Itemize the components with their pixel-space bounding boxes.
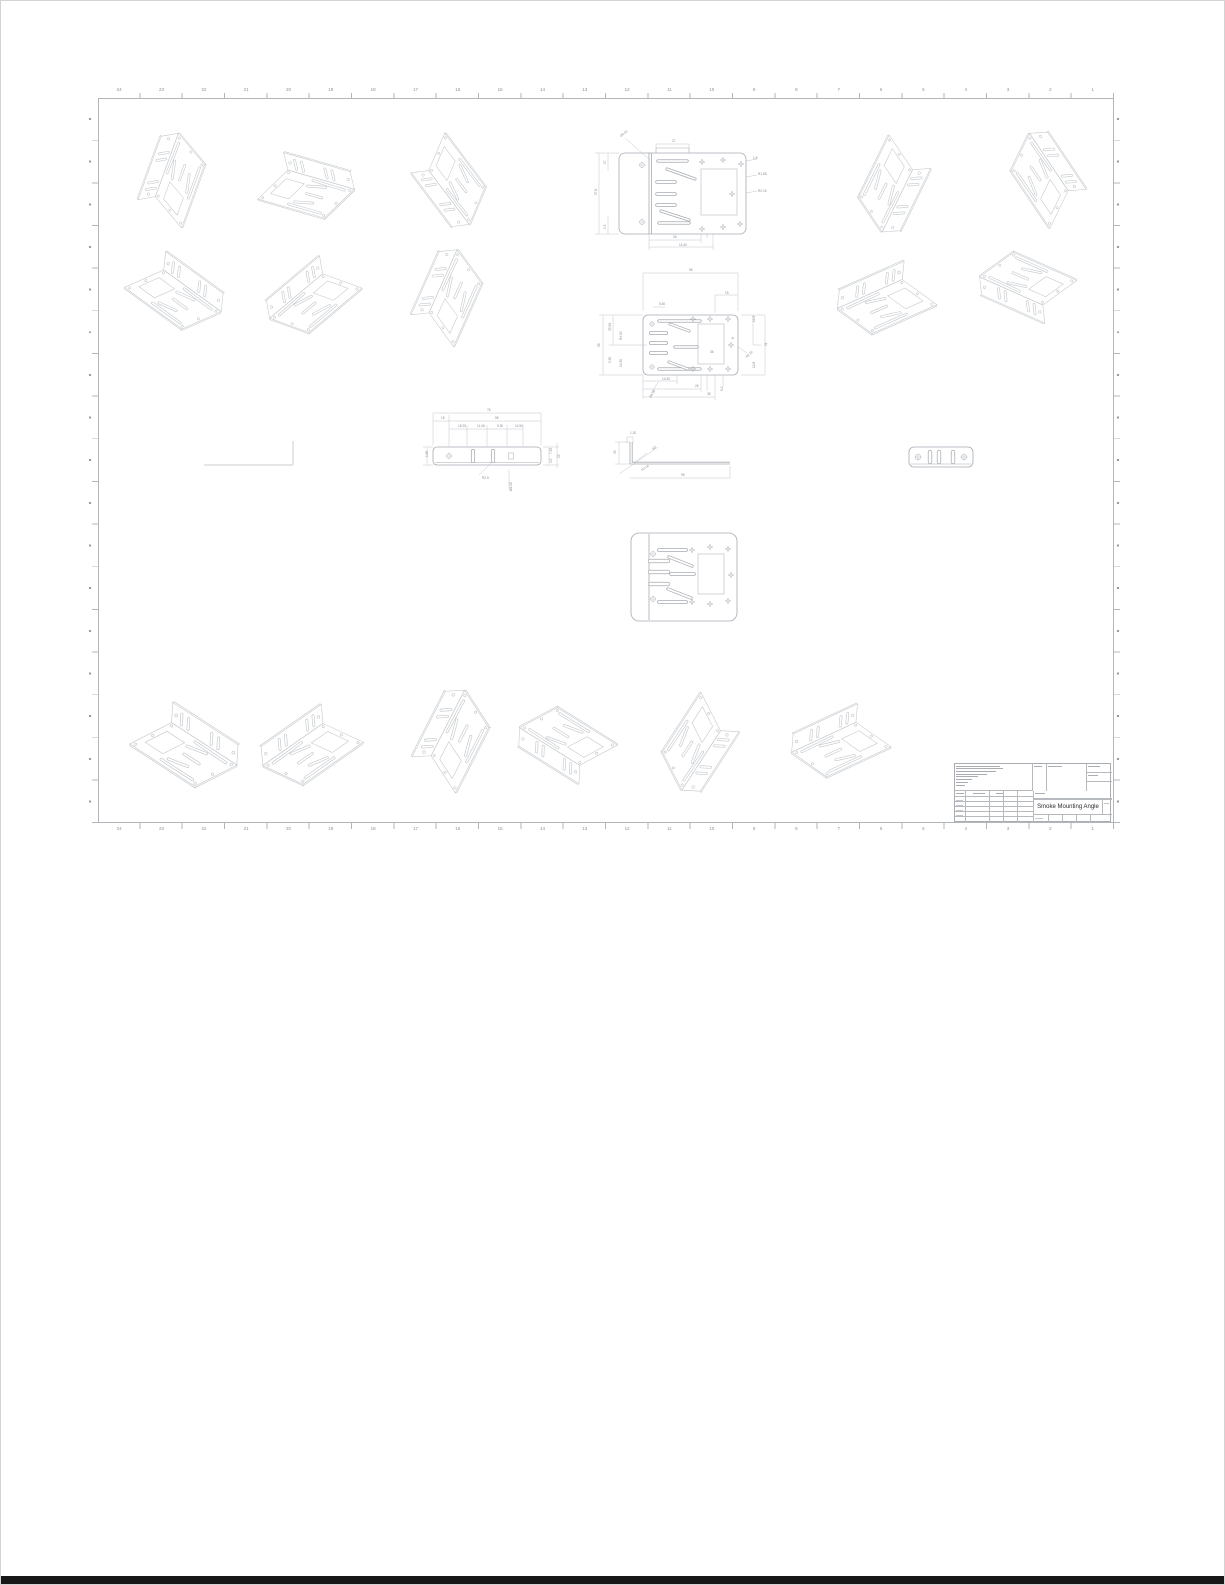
dim-label: 96 [681, 473, 685, 477]
dim-label: Ø4.50 [619, 129, 628, 138]
title-block-cell [1087, 773, 1112, 782]
dim-label: 12.8 [752, 362, 756, 368]
dim-label: 25 [557, 454, 561, 458]
iso-view [128, 699, 242, 790]
dim-label: 7 [706, 235, 708, 239]
dim-label: 6.2 [720, 386, 724, 391]
dim-label: 96 [689, 268, 693, 272]
dim-label: R2.16 [745, 350, 754, 359]
title-block-notes [955, 764, 1033, 791]
iso-view [1007, 128, 1089, 230]
dim-label: 25 [613, 450, 617, 454]
main-dim-view: 96155.505825.58R4.509.5014.3012.85112.8R… [597, 268, 768, 400]
drawing-page: 242322212019181716151413121110987654321 … [0, 0, 1225, 1585]
dim-label: R2.16 [758, 189, 767, 193]
dim-label: 14.30 [619, 359, 623, 367]
dim-label: R2.16 [640, 464, 650, 472]
dim-label: 51 [764, 342, 768, 346]
dim-label: 58 [597, 343, 601, 347]
iso-view [248, 137, 361, 234]
dim-label: 14.30 [679, 243, 687, 247]
dim-label: 14.30 [662, 377, 670, 381]
iso-view [259, 249, 368, 340]
dim-label: 9.30 [497, 424, 503, 428]
iso-view [404, 246, 489, 351]
strip-dim-view: 76155815.2511.069.3014.507.25254.51.50R2… [423, 408, 561, 491]
iso-view [127, 128, 216, 234]
title-block-cell [1102, 799, 1112, 815]
dim-label: 15.25 [458, 424, 466, 428]
dim-label: 9.50 [608, 357, 612, 363]
dim-label: 15 [725, 291, 729, 295]
dim-label: 26 [695, 384, 699, 388]
dim-label: 26 [673, 235, 677, 239]
top-dim-view: Ø4.502757.8171.51.8R1.85R2.1626714.30 [594, 129, 767, 250]
dim-label: Ø4.50 [509, 482, 513, 491]
dim-label: 12.8 [752, 316, 756, 322]
dim-label: R4.50 [619, 331, 623, 340]
iso-view [121, 247, 228, 334]
dim-label: 58 [495, 416, 499, 420]
dim-label: R1.85 [758, 172, 767, 176]
iso-view [406, 129, 491, 232]
dim-label: 4.5 [549, 458, 553, 463]
iso-view [659, 691, 742, 795]
dim-label: 90° [651, 444, 658, 450]
dim-label: 36 [707, 392, 711, 396]
dim-label: 7.25 [549, 448, 553, 454]
title-block-cell [1033, 791, 1112, 799]
dim-label: 17 [603, 160, 607, 164]
dim-label: 25.58 [608, 323, 612, 331]
title-block-title: Smoke Mounting Angle [1033, 799, 1102, 815]
page-bottom-bar [1, 1576, 1224, 1584]
title-block: Smoke Mounting Angle [954, 763, 1111, 822]
dim-label: 8 [731, 337, 735, 339]
title-block-cell [1087, 764, 1112, 773]
iso-view [834, 254, 941, 341]
dim-label: 11.06 [477, 424, 485, 428]
dim-label: 1.8 [753, 156, 758, 160]
iso-view [516, 705, 618, 786]
title-block-cell [1047, 764, 1087, 791]
iso-view [853, 132, 935, 234]
dim-label: 27 [672, 139, 676, 143]
dim-label: 57.8 [594, 189, 598, 195]
iso-view [976, 245, 1081, 330]
l-profile-view [204, 441, 293, 465]
revision-table [955, 791, 1033, 823]
title-block-scale-row [1033, 815, 1112, 823]
dim-label: 15 [441, 416, 445, 420]
iso-view [408, 688, 494, 796]
dim-label: R2.5 [482, 476, 489, 480]
dim-label: 76 [487, 408, 491, 412]
iso-view [788, 698, 894, 784]
dim-label: 1.50 [425, 451, 429, 457]
dim-label: 5.50 [659, 302, 665, 306]
dim-label: 36 [710, 350, 714, 354]
dim-label: 14.50 [515, 424, 523, 428]
end-view [909, 447, 973, 467]
dim-label: 1.20 [630, 431, 636, 435]
iso-view [256, 700, 366, 789]
title-block-cell [1033, 764, 1047, 791]
profile-dim-view: 1.202590°R2.1696 [613, 431, 730, 478]
dim-label: 1.5 [603, 224, 607, 229]
flat-pattern-view [631, 533, 737, 621]
